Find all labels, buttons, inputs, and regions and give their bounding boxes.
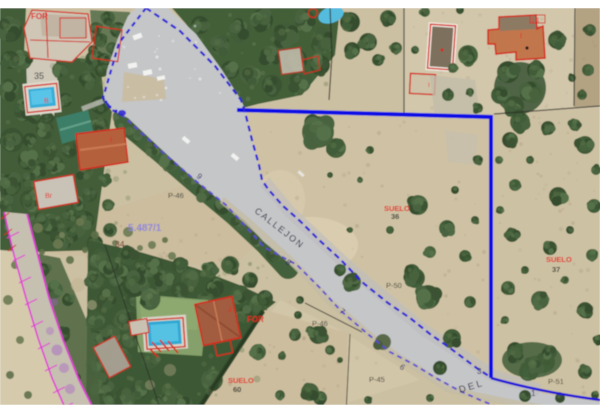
svg-text:P-51: P-51 [548, 377, 564, 386]
svg-text:FOR: FOR [31, 12, 48, 21]
svg-text:Br: Br [45, 193, 53, 200]
svg-text:5.487/1: 5.487/1 [128, 223, 162, 234]
svg-text:P-45: P-45 [369, 375, 385, 384]
svg-text:35: 35 [34, 71, 44, 81]
svg-text:1-1: 1-1 [531, 18, 540, 24]
svg-text:I: I [520, 33, 522, 40]
svg-text:SUELO: SUELO [228, 376, 254, 385]
svg-text:P-46: P-46 [312, 319, 328, 328]
svg-text:FOR: FOR [247, 315, 264, 324]
svg-text:P-46: P-46 [168, 191, 184, 200]
svg-text:36: 36 [391, 212, 399, 221]
svg-text:SUELO: SUELO [546, 255, 572, 264]
svg-text:B: B [44, 98, 49, 105]
svg-text:J: J [228, 307, 232, 314]
svg-text:1: 1 [531, 389, 536, 398]
svg-text:I: I [110, 137, 112, 144]
svg-text:P-50: P-50 [386, 281, 402, 290]
svg-text:37: 37 [552, 265, 560, 274]
svg-text:60: 60 [233, 385, 241, 394]
svg-text:3: 3 [477, 367, 482, 376]
svg-text:34: 34 [115, 239, 125, 249]
